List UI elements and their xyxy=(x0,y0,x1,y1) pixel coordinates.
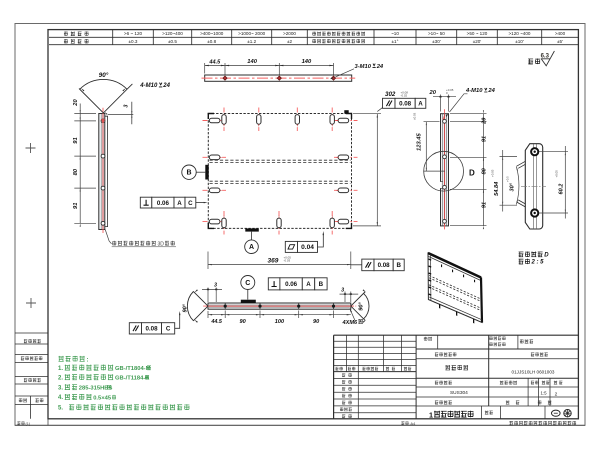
svg-text:24: 24 xyxy=(487,88,495,94)
svg-text:GB-/T1804-M: GB-/T1804-M xyxy=(115,366,151,372)
svg-text:C: C xyxy=(245,280,250,287)
svg-text:+0.05: +0.05 xyxy=(555,170,559,178)
svg-text:>400~1000: >400~1000 xyxy=(200,31,224,36)
svg-text:0.08: 0.08 xyxy=(378,262,391,269)
svg-text:90°: 90° xyxy=(99,71,109,79)
svg-text:4XM6: 4XM6 xyxy=(342,320,359,326)
svg-text:3-M10: 3-M10 xyxy=(355,64,372,70)
svg-text:0.5×45: 0.5×45 xyxy=(93,395,112,401)
svg-text:-0.02: -0.02 xyxy=(401,94,408,98)
svg-text:44.5: 44.5 xyxy=(208,59,221,65)
svg-text:1:5: 1:5 xyxy=(540,390,547,395)
svg-text:±10': ±10' xyxy=(515,39,524,44)
svg-text:±1°: ±1° xyxy=(392,39,399,44)
svg-text:302: 302 xyxy=(385,91,396,98)
svg-text:369: 369 xyxy=(268,258,279,265)
svg-text:±5': ±5' xyxy=(557,39,563,44)
svg-text:0.06: 0.06 xyxy=(157,200,170,207)
svg-text:0.06: 0.06 xyxy=(285,281,298,288)
svg-text:91: 91 xyxy=(481,202,487,208)
svg-text:4-M10: 4-M10 xyxy=(465,88,483,94)
svg-text:0.04: 0.04 xyxy=(301,244,314,251)
svg-text:3D: 3D xyxy=(158,241,165,247)
svg-text:+0.05: +0.05 xyxy=(491,169,495,177)
svg-text:>50 ~ 120: >50 ~ 120 xyxy=(467,31,488,36)
svg-text:C: C xyxy=(166,326,171,333)
svg-text:1: 1 xyxy=(429,411,433,420)
svg-text:±20': ±20' xyxy=(473,39,482,44)
svg-text:±30': ±30' xyxy=(432,39,441,44)
svg-text:2 : 5: 2 : 5 xyxy=(531,260,545,266)
svg-text:GB-/T1184-K: GB-/T1184-K xyxy=(115,376,150,382)
svg-text:30°: 30° xyxy=(509,182,515,191)
svg-text:C: C xyxy=(188,200,193,207)
svg-text:20: 20 xyxy=(73,99,79,107)
svg-text:A: A xyxy=(306,281,311,288)
svg-text:90: 90 xyxy=(239,319,246,325)
svg-text:90°: 90° xyxy=(183,303,189,312)
svg-text:>120~400: >120~400 xyxy=(162,31,183,36)
svg-text:100: 100 xyxy=(275,319,285,325)
svg-text:91: 91 xyxy=(73,137,79,143)
svg-text:>10~ 50: >10~ 50 xyxy=(428,31,445,36)
svg-text:D: D xyxy=(544,253,549,259)
svg-text:2: 2 xyxy=(555,391,558,397)
svg-text:(1): (1) xyxy=(26,422,31,426)
svg-text:>120 ~400: >120 ~400 xyxy=(509,31,531,36)
svg-text:+0.5: +0.5 xyxy=(506,176,510,182)
svg-text:>1000~ 2000: >1000~ 2000 xyxy=(238,31,266,36)
svg-text:140: 140 xyxy=(247,59,257,65)
svg-text:0.08: 0.08 xyxy=(399,101,412,108)
svg-text::A4: :A4 xyxy=(410,422,416,426)
svg-text:>2000: >2000 xyxy=(283,31,296,36)
svg-text:60.2: 60.2 xyxy=(558,183,564,195)
svg-text:140: 140 xyxy=(302,59,312,65)
svg-text:SUS304: SUS304 xyxy=(450,390,468,396)
svg-text::: : xyxy=(87,357,89,364)
svg-text:A: A xyxy=(418,101,423,108)
svg-text:±0.8: ±0.8 xyxy=(207,39,216,44)
svg-text:123.45: 123.45 xyxy=(416,132,422,151)
svg-text:20: 20 xyxy=(481,117,487,125)
svg-text:>400: >400 xyxy=(555,31,566,36)
svg-text:A: A xyxy=(249,244,254,251)
svg-text:91: 91 xyxy=(73,202,79,208)
svg-text:-0.03: -0.03 xyxy=(284,259,291,263)
svg-text:0.08: 0.08 xyxy=(145,326,158,333)
svg-text:80: 80 xyxy=(481,167,487,174)
svg-text:D: D xyxy=(469,169,475,178)
svg-text:5.: 5. xyxy=(58,406,63,412)
svg-text:2.: 2. xyxy=(58,375,63,381)
svg-text:24: 24 xyxy=(162,83,170,89)
svg-text:90: 90 xyxy=(313,319,320,325)
svg-text:B: B xyxy=(319,281,324,288)
svg-text:24: 24 xyxy=(376,64,384,70)
svg-text:1.: 1. xyxy=(58,366,63,372)
svg-text:±1.2: ±1.2 xyxy=(247,39,256,44)
svg-text:±2: ±2 xyxy=(287,39,293,44)
svg-text:±0.5: ±0.5 xyxy=(168,39,177,44)
svg-text:80: 80 xyxy=(73,168,79,175)
svg-text:±0.03: ±0.03 xyxy=(413,112,417,120)
svg-text:01JJS10LH 0601003: 01JJS10LH 0601003 xyxy=(512,370,555,375)
svg-text:3: 3 xyxy=(214,283,217,289)
svg-text:20: 20 xyxy=(429,90,437,96)
svg-text:44.5: 44.5 xyxy=(210,319,222,325)
svg-text:~10: ~10 xyxy=(391,31,399,36)
svg-text:±0.3: ±0.3 xyxy=(129,39,138,44)
svg-text:B: B xyxy=(186,170,191,177)
svg-text:B: B xyxy=(396,262,401,269)
svg-text:4-M10: 4-M10 xyxy=(139,83,158,89)
svg-text:3.: 3. xyxy=(58,385,63,391)
svg-text:90°: 90° xyxy=(359,302,365,311)
svg-text:54.84: 54.84 xyxy=(494,181,500,196)
svg-text:4.: 4. xyxy=(58,395,63,401)
svg-text:>6 ~ 120: >6 ~ 120 xyxy=(124,31,143,36)
svg-text:3: 3 xyxy=(341,287,344,293)
svg-text:91: 91 xyxy=(481,136,487,142)
svg-text:A: A xyxy=(177,200,182,207)
